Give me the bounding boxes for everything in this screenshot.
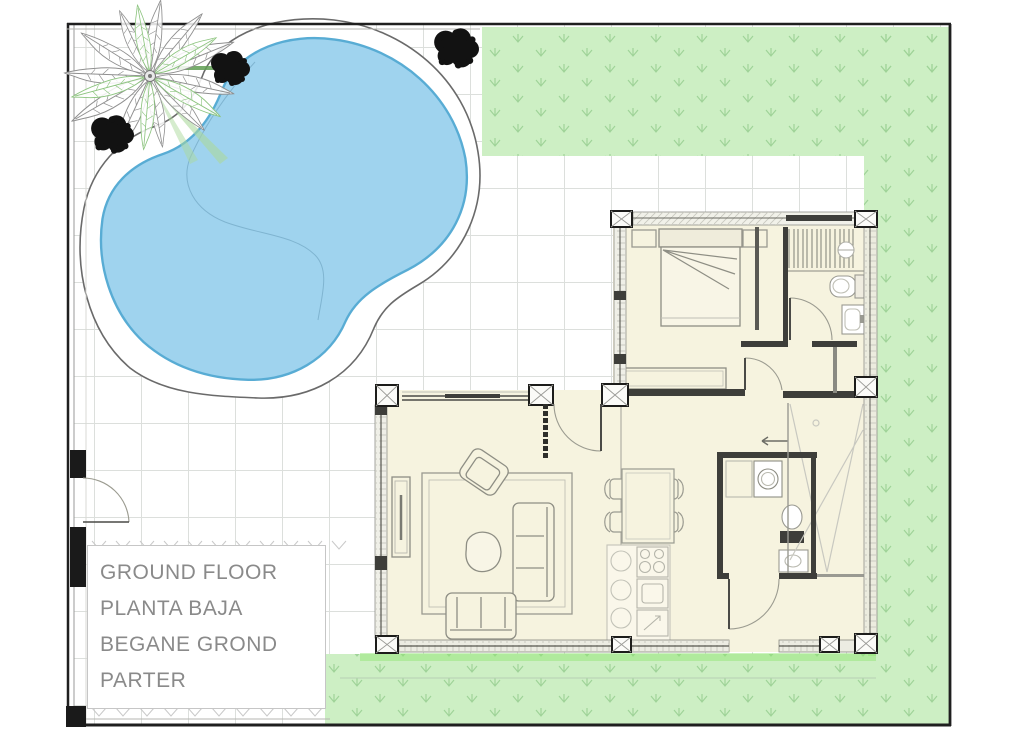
bed [661,247,740,326]
dining-table [622,469,674,543]
column [855,634,877,653]
boundary-post [66,706,86,727]
loveseat [446,593,516,639]
sofa [513,503,554,601]
gate-post [70,527,86,587]
title-line-begane-grond: BEGANE GROND [100,627,325,663]
column [602,384,628,406]
column [855,377,877,397]
title-line-ground-floor: GROUND FLOOR [100,555,325,591]
title-block: GROUND FLOOR PLANTA BAJA BEGANE GROND PA… [87,545,326,709]
floor-plan-page: GROUND FLOOR PLANTA BAJA BEGANE GROND PA… [0,0,1024,732]
column [376,385,398,406]
coffee-table [466,532,501,571]
hedge-highlight-bottom [360,653,876,661]
title-line-parter: PARTER [100,663,325,699]
nightstand [632,230,656,247]
column [612,637,631,652]
toilet [782,505,802,529]
column [529,385,553,405]
bed-headboard [659,229,742,247]
title-line-planta-baja: PLANTA BAJA [100,591,325,627]
column [820,637,839,652]
kitchen [607,545,670,646]
column [855,211,877,227]
gate-post [70,450,86,478]
column [611,211,632,227]
column [376,636,398,653]
utility-cabinet [726,461,752,497]
